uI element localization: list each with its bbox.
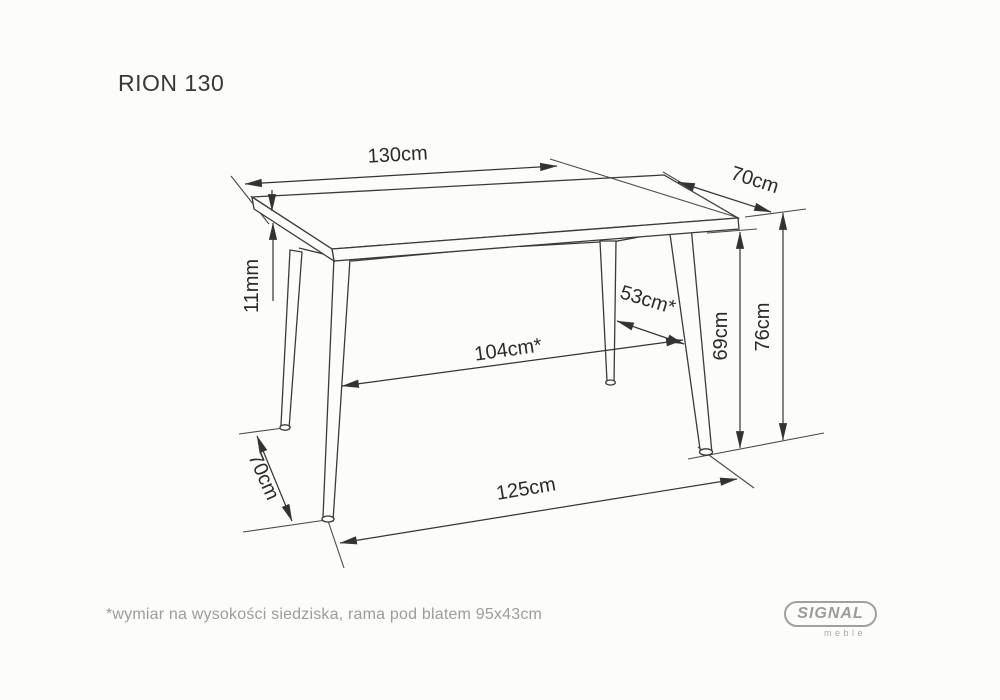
brand-logo: SIGNAL [784, 601, 877, 627]
brand-name: SIGNAL [797, 605, 863, 623]
dim-frame-height-label: 69cm [710, 312, 732, 361]
brand-tagline: meble [812, 628, 878, 638]
dim-top-length-label: 130cm [367, 142, 428, 167]
dim-inner-length-label: 104cm* [473, 334, 543, 365]
foot-back-left [280, 425, 290, 430]
dim-thickness-label: 11mm [241, 259, 263, 313]
dimension-footnote: *wymiar na wysokości siedziska, rama pod… [106, 606, 542, 624]
dim-inner-depth-line [617, 321, 684, 344]
dim-feet-length-label: 125cm [495, 473, 558, 504]
dim-top-depth-label: 70cm [728, 162, 781, 198]
dim-inner-depth-label: 53cm* [617, 281, 678, 319]
floor-line-front-left-foot [243, 519, 333, 532]
foot-back-right [606, 380, 616, 385]
dim-feet-depth-label: 70cm [243, 450, 283, 504]
leg-back-left [281, 250, 302, 429]
dim-total-height-label: 76cm [752, 303, 774, 352]
ext-top-length-right [550, 159, 739, 218]
dim-top-length-line [245, 166, 557, 184]
table-legs [280, 226, 713, 522]
tabletop [252, 175, 739, 261]
foot-front-right [700, 449, 713, 455]
leg-front-right [669, 226, 712, 454]
product-dimension-sheet: RION 130 [0, 0, 1000, 700]
leg-back-right [600, 241, 616, 384]
ext-top-depth-left [663, 172, 692, 189]
table-dimension-drawing: 130cm 70cm 11mm 104cm* 53cm* 69cm 76cm 7… [0, 0, 1000, 700]
foot-front-left [322, 516, 334, 522]
ext-tabletop-corner-right [745, 209, 806, 217]
leg-front-left [323, 257, 350, 521]
